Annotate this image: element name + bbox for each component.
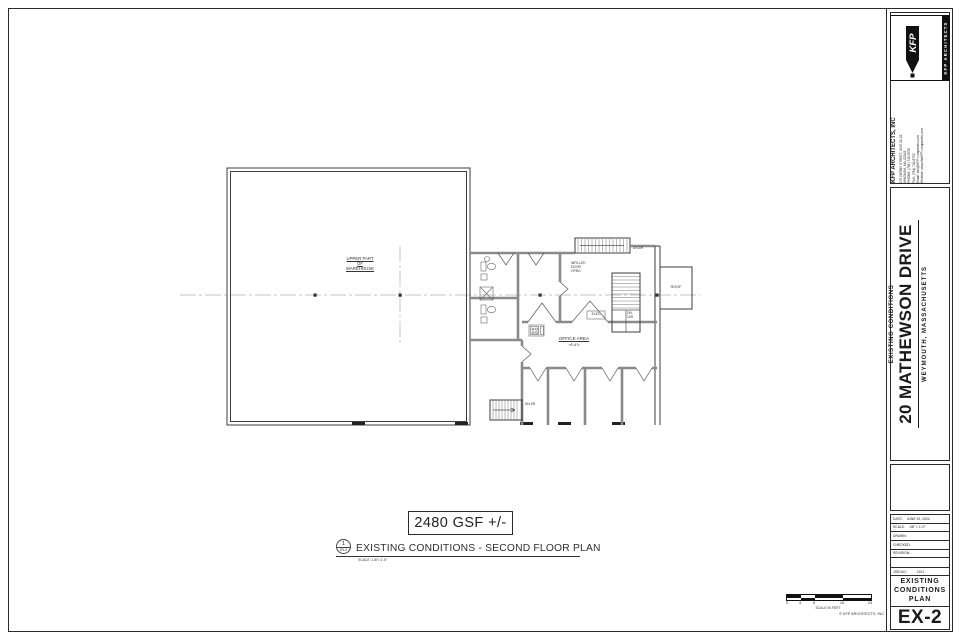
stair-top-label: DN-6R (633, 247, 643, 251)
drawing-title-group: 1 EX-2 EXISTING CONDITIONS - SECOND FLOO… (336, 539, 580, 557)
date-label: DATE: (893, 517, 903, 521)
infilled-line3: OPNG (571, 270, 585, 274)
detail-bubble-number: 1 (337, 541, 350, 548)
copyright-note: © KFP ARCHITECTS, INC (806, 612, 884, 616)
detail-bubble-sheet: EX-2 (337, 548, 350, 553)
titleblock-data-section: DATE: JUNE 19, 2022 SCALE: 1/8" = 1'-0" … (890, 514, 950, 630)
job-value: 2101 (917, 570, 925, 574)
scale-tick-16: 16 (840, 601, 844, 605)
titleblock-row-checked: CHECKED: (891, 541, 949, 550)
pencil-icon: KFP (891, 16, 937, 80)
office-ceiling-label: +8'-6"± (568, 343, 579, 347)
firm-logo: KFP KFP ARCHITECTS (890, 15, 950, 81)
interior-partitions (522, 253, 657, 425)
stair-right-line2: 14R (627, 316, 633, 320)
drawing-sheet: { "sheet": { "firm": { "logo_kfp": "KFP"… (0, 0, 960, 640)
project-location: WEYMOUTH, MASSACHUSETTS (922, 189, 928, 459)
warehouse-label-line3: WAREHOUSE (346, 267, 374, 272)
elec-label: ELEC (592, 313, 601, 317)
stair-bottom-label: DN-6R (525, 403, 535, 407)
date-value: JUNE 19, 2022 (907, 517, 930, 521)
sheet-title: EXISTING CONDITIONS PLAN (891, 576, 949, 607)
scale-tick-4: 4 (799, 601, 801, 605)
scale-bar-icon (786, 594, 872, 601)
titleblock-row-spacer (891, 558, 949, 568)
sheet-title-line2: CONDITIONS (891, 587, 949, 596)
kitchen-counter (529, 325, 544, 336)
office-area-label: OFFICE AREA (559, 336, 589, 341)
scale-tick-8: 8 (813, 601, 815, 605)
warehouse-label: UPPER PART OF WAREHOUSE (346, 257, 374, 272)
sheet-title-line1: EXISTING (891, 578, 949, 587)
firm-name: KFP ARCHITECTS, INC (891, 83, 897, 183)
scale-label: SCALE: (893, 525, 905, 529)
titleblock-blank-section (890, 464, 950, 511)
revision-label: REVISION: (893, 551, 910, 555)
scale-caption: SCALE IN FEET (815, 607, 840, 611)
project-title-block: EXISTING CONDITIONS 20 MATHEWSON DRIVE W… (889, 189, 951, 459)
gsf-callout: 2480 GSF +/- (408, 511, 513, 535)
centerlines (180, 246, 700, 344)
stair-bottom (490, 400, 522, 420)
firm-address-line: Website: www.theKFP-companies.com (920, 83, 924, 183)
checked-label: CHECKED: (893, 543, 911, 547)
infilled-door-label: INFILLED DOOR OPNG (571, 262, 585, 273)
sheet-number: EX-2 (891, 607, 949, 629)
firm-logo-pencil-area: KFP (891, 16, 942, 80)
stair-right-label: DN- 14R (627, 312, 633, 320)
firm-logo-kfp-text: KFP (908, 33, 919, 53)
project-phase: EXISTING CONDITIONS (889, 189, 895, 459)
firm-info: KFP ARCHITECTS, INC 175 DERBY STREET, UN… (891, 83, 949, 183)
scale-value: 1/8" = 1'-0" (909, 525, 926, 529)
roof-label: ROOF (671, 285, 682, 289)
titleblock-row-job: JOB NO: 2101 (891, 568, 949, 577)
warehouse-outline (227, 168, 470, 425)
stair-top (578, 239, 627, 252)
drawn-label: DRAWN: (893, 534, 907, 538)
titleblock-row-scale: SCALE: 1/8" = 1'-0" (891, 524, 949, 533)
firm-logo-strip: KFP ARCHITECTS (942, 16, 949, 80)
scale-tick-0: 0 (786, 601, 788, 605)
detail-bubble-icon: 1 EX-2 (336, 539, 351, 554)
titleblock-row-drawn: DRAWN: (891, 532, 949, 541)
project-name: 20 MATHEWSON DRIVE (896, 220, 919, 428)
job-label: JOB NO: (893, 570, 907, 574)
sheet-title-line3: PLAN (891, 596, 949, 605)
titleblock-row-date: DATE: JUNE 19, 2022 (891, 515, 949, 524)
drawing-title-scale: SCALE: 1/8"=1'-0" (358, 558, 387, 562)
drawing-title: EXISTING CONDITIONS - SECOND FLOOR PLAN (356, 543, 601, 554)
titleblock-row-revision: REVISION: (891, 550, 949, 559)
restrooms (470, 253, 522, 340)
scale-tick-24: 24 (868, 601, 872, 605)
